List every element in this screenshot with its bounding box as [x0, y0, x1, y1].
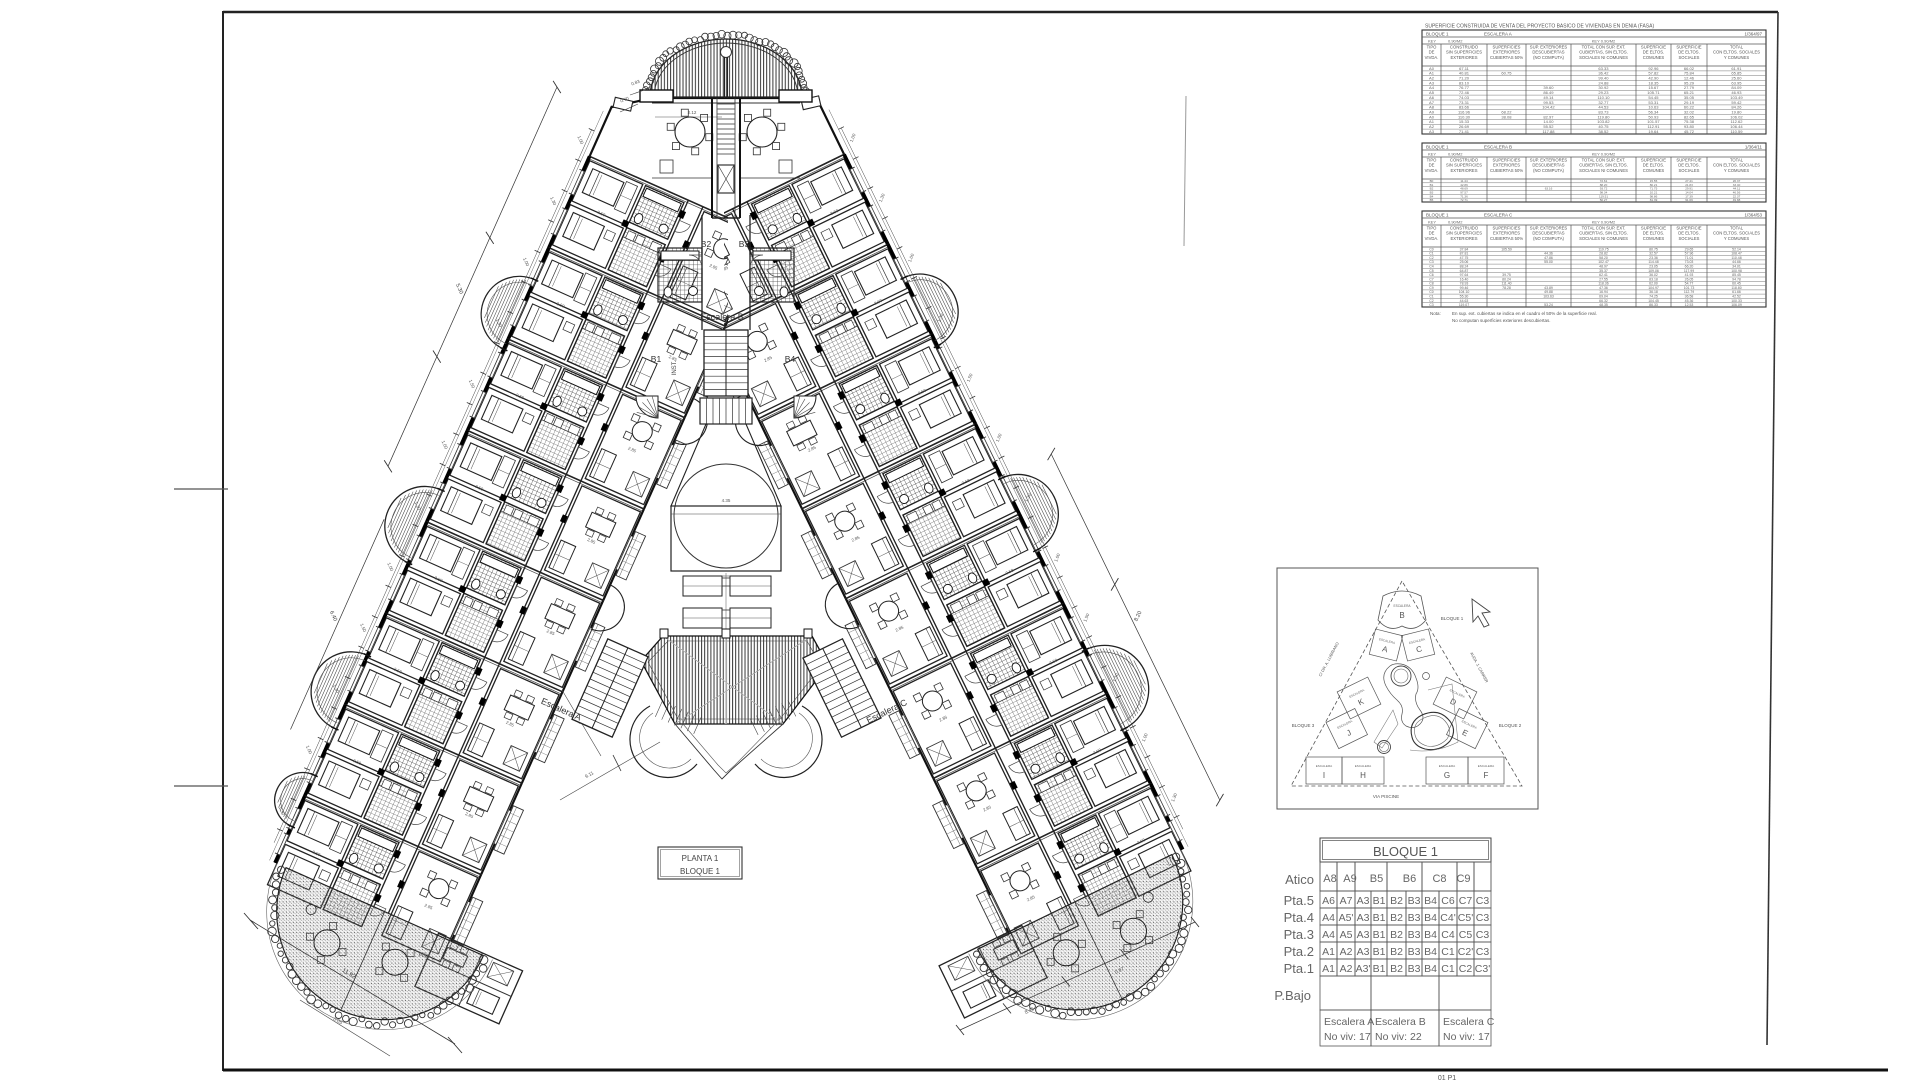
svg-text:A1: A1	[1322, 946, 1335, 958]
svg-text:No viv: 17: No viv: 17	[1324, 1031, 1371, 1043]
svg-text:B4: B4	[785, 354, 796, 364]
svg-text:0.90/M2: 0.90/M2	[1448, 152, 1463, 157]
svg-text:B2: B2	[1390, 912, 1403, 924]
svg-text:G: G	[1444, 771, 1450, 780]
svg-text:B5: B5	[1370, 873, 1383, 885]
svg-text:91.69: 91.69	[1685, 198, 1693, 202]
svg-text:ESCALERA C: ESCALERA C	[1484, 213, 1513, 218]
svg-text:Escalera B: Escalera B	[700, 312, 744, 322]
svg-text:B3: B3	[739, 239, 750, 249]
svg-text:VIA PISCINE: VIA PISCINE	[1373, 794, 1399, 799]
svg-text:No viv: 17: No viv: 17	[1443, 1031, 1490, 1043]
svg-text:C5': C5'	[1458, 912, 1473, 924]
svg-text:SUPERFICIE CONSTRUIDA DE VENT: SUPERFICIE CONSTRUIDA DE VENTA DEL PROYE…	[1425, 24, 1654, 30]
svg-text:ESCALERA B: ESCALERA B	[1484, 145, 1512, 150]
svg-text:C2: C2	[1459, 963, 1473, 975]
svg-text:H: H	[1360, 771, 1366, 780]
svg-text:38.08: 38.08	[1501, 114, 1512, 119]
svg-text:B2: B2	[1390, 929, 1403, 941]
svg-text:Escalera A: Escalera A	[1324, 1016, 1374, 1028]
svg-text:EXTERIORES: EXTERIORES	[1451, 168, 1478, 173]
svg-text:COMUNES: COMUNES	[1643, 55, 1665, 60]
svg-text:C3: C3	[1476, 912, 1490, 924]
svg-text:B3: B3	[1408, 895, 1421, 907]
svg-text:B1: B1	[651, 354, 662, 364]
svg-text:C3: C3	[1476, 895, 1490, 907]
svg-text:72.71: 72.71	[1460, 198, 1468, 202]
svg-text:Pta.3: Pta.3	[1284, 927, 1314, 942]
svg-text:ESCALERA: ESCALERA	[1393, 604, 1411, 608]
svg-text:12.53: 12.53	[1685, 303, 1694, 307]
svg-text:(NO COMPUTA): (NO COMPUTA)	[1533, 55, 1564, 60]
svg-text:71.41: 71.41	[1459, 129, 1470, 134]
svg-text:SOCIALES: SOCIALES	[1679, 55, 1700, 60]
svg-text:38.52: 38.52	[1598, 129, 1609, 134]
svg-text:KEY 0.90/M2: KEY 0.90/M2	[1592, 152, 1616, 157]
svg-text:B2: B2	[1390, 946, 1403, 958]
svg-text:C1: C1	[1441, 963, 1455, 975]
svg-text:SOCIALES NI COMUNES: SOCIALES NI COMUNES	[1579, 55, 1628, 60]
svg-text:SOCIALES: SOCIALES	[1679, 168, 1700, 173]
svg-text:VIVDA.: VIVDA.	[1425, 236, 1439, 241]
svg-text:No viv: 22: No viv: 22	[1375, 1031, 1422, 1043]
svg-text:B1: B1	[1373, 946, 1386, 958]
svg-text:A8: A8	[1323, 873, 1336, 885]
svg-text:BLOQUE 1: BLOQUE 1	[1441, 616, 1464, 621]
svg-text:COMUNES: COMUNES	[1643, 168, 1665, 173]
svg-text:45.72: 45.72	[1684, 129, 1695, 134]
svg-text:A3: A3	[1357, 946, 1370, 958]
svg-text:B1: B1	[1373, 963, 1386, 975]
svg-text:KEY: KEY	[1428, 152, 1436, 157]
svg-text:A4: A4	[1322, 929, 1335, 941]
svg-text:BLOQUE 2: BLOQUE 2	[1499, 723, 1522, 728]
svg-text:Atico: Atico	[1285, 872, 1314, 887]
svg-text:B4: B4	[1424, 895, 1437, 907]
svg-text:49.88: 49.88	[1733, 198, 1741, 202]
svg-text:4.35: 4.35	[722, 498, 731, 503]
svg-text:BLOQUE 1: BLOQUE 1	[1373, 844, 1438, 859]
svg-text:SOCIALES NI COMUNES: SOCIALES NI COMUNES	[1579, 168, 1628, 173]
svg-text:106.09: 106.09	[1731, 303, 1742, 307]
svg-text:VIVDA.: VIVDA.	[1425, 55, 1439, 60]
svg-text:Nota:: Nota:	[1430, 311, 1441, 316]
svg-text:SOCIALES NI COMUNES: SOCIALES NI COMUNES	[1579, 236, 1628, 241]
svg-text:86.33: 86.33	[1649, 303, 1658, 307]
svg-text:B2: B2	[1390, 963, 1403, 975]
svg-text:C3: C3	[1476, 946, 1490, 958]
svg-text:01 P1: 01 P1	[1438, 1075, 1456, 1080]
svg-text:A4: A4	[1322, 912, 1335, 924]
svg-text:53.24: 53.24	[1544, 303, 1553, 307]
svg-text:No computan superficies exteri: No computan superficies exteriores descu…	[1452, 318, 1551, 323]
svg-text:BLOQUE 1: BLOQUE 1	[680, 867, 721, 876]
svg-text:C4: C4	[1441, 929, 1455, 941]
svg-text:C6: C6	[1441, 895, 1455, 907]
svg-text:B1: B1	[1373, 929, 1386, 941]
svg-text:A9: A9	[1343, 873, 1356, 885]
svg-text:Y COMUNES: Y COMUNES	[1724, 168, 1749, 173]
svg-text:B4: B4	[1424, 912, 1437, 924]
svg-text:A3': A3'	[1356, 963, 1371, 975]
svg-text:Pta.1: Pta.1	[1284, 961, 1314, 976]
svg-text:C3: C3	[1429, 303, 1434, 307]
svg-text:INST.: INST.	[672, 360, 678, 375]
svg-text:2.12: 2.12	[688, 110, 697, 115]
svg-text:A2: A2	[1340, 946, 1353, 958]
svg-text:VIVDA.: VIVDA.	[1425, 168, 1439, 173]
svg-text:BLOQUE 1: BLOQUE 1	[1426, 145, 1449, 150]
svg-text:Pta.5: Pta.5	[1284, 893, 1314, 908]
svg-text:A3: A3	[1357, 929, 1370, 941]
svg-text:B2: B2	[1390, 895, 1403, 907]
svg-text:Escalera C: Escalera C	[1443, 1016, 1495, 1028]
svg-text:Escalera B: Escalera B	[1375, 1016, 1426, 1028]
svg-text:ESCALERA: ESCALERA	[1478, 764, 1495, 768]
svg-text:Pta.2: Pta.2	[1284, 944, 1314, 959]
svg-text:60.75: 60.75	[1501, 71, 1512, 76]
svg-text:F: F	[1484, 771, 1489, 780]
svg-text:CUBIERTAS 50%: CUBIERTAS 50%	[1490, 55, 1523, 60]
svg-text:105.59: 105.59	[1501, 247, 1512, 251]
svg-text:EXTERIORES: EXTERIORES	[1451, 55, 1478, 60]
svg-text:B3: B3	[1408, 963, 1421, 975]
svg-text:B5: B5	[1430, 198, 1434, 202]
svg-text:C3: C3	[1476, 929, 1490, 941]
svg-text:KEY: KEY	[1428, 39, 1436, 44]
svg-text:C9: C9	[1456, 873, 1470, 885]
svg-text:CUBIERTAS 50%: CUBIERTAS 50%	[1490, 236, 1523, 241]
svg-text:1/364/97: 1/364/97	[1744, 32, 1762, 37]
svg-text:B6: B6	[1403, 873, 1416, 885]
svg-text:PLANTA 1: PLANTA 1	[682, 854, 719, 863]
svg-text:63.16: 63.16	[1545, 187, 1553, 191]
svg-text:B4: B4	[1424, 929, 1437, 941]
svg-text:B3: B3	[1408, 929, 1421, 941]
svg-text:ESCALERA: ESCALERA	[1439, 764, 1456, 768]
svg-text:A5': A5'	[1339, 912, 1354, 924]
svg-text:C3': C3'	[1475, 963, 1490, 975]
svg-text:Pta.4: Pta.4	[1284, 910, 1314, 925]
svg-text:A3: A3	[1429, 129, 1435, 134]
svg-text:C1: C1	[1441, 946, 1455, 958]
svg-text:A1: A1	[1322, 963, 1335, 975]
svg-text:ESCALERA A: ESCALERA A	[1484, 32, 1512, 37]
svg-text:50.27: 50.27	[1600, 198, 1608, 202]
svg-text:C8: C8	[1432, 873, 1446, 885]
svg-text:0.90/M2: 0.90/M2	[1448, 39, 1463, 44]
svg-text:Y COMUNES: Y COMUNES	[1724, 55, 1749, 60]
svg-text:117.88: 117.88	[1542, 129, 1555, 134]
svg-text:B3: B3	[1408, 912, 1421, 924]
svg-text:48.35: 48.35	[1599, 303, 1608, 307]
svg-text:B3: B3	[1408, 946, 1421, 958]
svg-text:A3: A3	[1357, 912, 1370, 924]
svg-text:110.59: 110.59	[1730, 129, 1743, 134]
svg-text:C4': C4'	[1440, 912, 1455, 924]
svg-text:B: B	[1399, 611, 1404, 620]
svg-text:P.Bajo: P.Bajo	[1274, 988, 1311, 1003]
svg-text:81.39: 81.39	[1650, 198, 1658, 202]
svg-text:COMUNES: COMUNES	[1643, 236, 1665, 241]
svg-text:103.63: 103.63	[1543, 295, 1554, 299]
svg-text:B4: B4	[1424, 963, 1437, 975]
svg-text:B4: B4	[1424, 946, 1437, 958]
svg-text:1/364/11: 1/364/11	[1745, 145, 1763, 150]
svg-text:CUBIERTAS 50%: CUBIERTAS 50%	[1490, 168, 1523, 173]
svg-text:0.90/M2: 0.90/M2	[1448, 220, 1463, 225]
svg-text:SOCIALES: SOCIALES	[1679, 236, 1700, 241]
svg-text:A3: A3	[1357, 895, 1370, 907]
svg-text:ESCALERA: ESCALERA	[1355, 764, 1372, 768]
svg-text:EXTERIORES: EXTERIORES	[1451, 236, 1478, 241]
svg-text:C5: C5	[1459, 929, 1473, 941]
svg-text:I: I	[1323, 771, 1325, 780]
svg-text:55.00: 55.00	[1544, 260, 1553, 264]
svg-text:78.28: 78.28	[1502, 286, 1511, 290]
svg-text:A2: A2	[1340, 963, 1353, 975]
svg-text:KEY: KEY	[1428, 220, 1436, 225]
svg-text:A6: A6	[1322, 895, 1335, 907]
svg-text:BLOQUE 3: BLOQUE 3	[1292, 723, 1315, 728]
svg-text:(NO COMPUTA): (NO COMPUTA)	[1533, 236, 1564, 241]
svg-text:KEY 0.90/M2: KEY 0.90/M2	[1592, 39, 1616, 44]
svg-text:C2': C2'	[1458, 946, 1473, 958]
svg-text:B1: B1	[1373, 895, 1386, 907]
svg-text:B2: B2	[701, 239, 712, 249]
svg-text:ESCALERA: ESCALERA	[1316, 764, 1333, 768]
svg-text:A7: A7	[1340, 895, 1353, 907]
svg-text:C7: C7	[1459, 895, 1473, 907]
svg-text:104.42: 104.42	[1542, 105, 1555, 110]
svg-text:A5: A5	[1340, 929, 1353, 941]
svg-text:B1: B1	[1373, 912, 1386, 924]
svg-text:(NO COMPUTA): (NO COMPUTA)	[1533, 168, 1564, 173]
svg-text:En sup. ext. cubiertas se indi: En sup. ext. cubiertas se indica en el c…	[1452, 311, 1597, 316]
svg-text:KEY 0.90/M2: KEY 0.90/M2	[1592, 220, 1616, 225]
svg-text:119.07: 119.07	[1459, 303, 1469, 307]
svg-text:1/364/53: 1/364/53	[1744, 213, 1762, 218]
svg-text:BLOQUE 1: BLOQUE 1	[1426, 213, 1449, 218]
svg-text:Y COMUNES: Y COMUNES	[1724, 236, 1749, 241]
svg-text:BLOQUE 1: BLOQUE 1	[1426, 32, 1449, 37]
svg-text:19.64: 19.64	[1648, 129, 1659, 134]
